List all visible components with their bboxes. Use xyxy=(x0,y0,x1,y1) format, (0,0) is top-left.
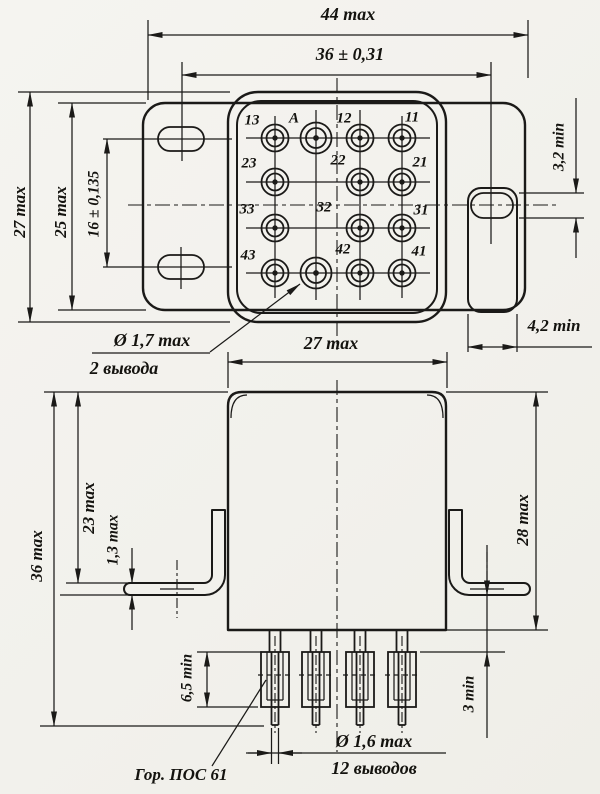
dim-body-width-label: 27 max xyxy=(303,333,359,353)
pin-diameter-side-value: Ø 1,6 max xyxy=(335,731,413,751)
dim-clearance-min-label: 3 min xyxy=(461,676,478,714)
pin-diameter-value: Ø 1,7 max xyxy=(113,330,191,350)
pin-label-33: 33 xyxy=(239,201,256,217)
dim-body-width: 27 max xyxy=(228,333,447,388)
dim-mount-span: 36 ± 0,31 xyxy=(182,44,491,75)
pin-diameter-callout-side: Ø 1,6 max 12 выводов xyxy=(246,728,446,778)
mounting-bracket-left xyxy=(124,510,225,618)
pin-count-side-value: 12 выводов xyxy=(331,758,417,778)
pin-unit xyxy=(385,630,419,733)
dim-slot-width: 3,2 min xyxy=(519,98,584,258)
pin-label-13: 13 xyxy=(245,112,261,128)
pin-large-A xyxy=(301,123,332,154)
dim-tab-width: 4,2 min xyxy=(468,314,592,352)
dim-tab-width-label: 4,2 min xyxy=(527,316,581,335)
pin-label-31: 31 xyxy=(413,202,429,218)
dim-overall-height-side: 36 max xyxy=(27,392,54,726)
dim-body-height-label: 28 max xyxy=(513,494,532,547)
top-view: 13 A 12 11 23 22 21 33 32 31 43 42 41 44… xyxy=(10,4,592,378)
dim-slot-pitch: 16 ± 0,135 xyxy=(86,139,107,267)
pin-label-11: 11 xyxy=(405,109,419,125)
dim-overall-width-label: 44 max xyxy=(320,4,376,24)
dim-flange-height-label: 25 max xyxy=(51,186,70,239)
dim-overall-height: 27 max xyxy=(10,92,230,322)
pin-label-22: 22 xyxy=(330,152,347,168)
dim-slot-pitch-label: 16 ± 0,135 xyxy=(86,170,103,237)
pin-label-12: 12 xyxy=(337,110,353,126)
side-view: 27 max 36 max 23 max 1,3 max 28 max xyxy=(27,333,548,784)
pin-label-43: 43 xyxy=(240,247,257,263)
pin-label-21: 21 xyxy=(412,154,428,170)
dim-overall-height-side-label: 36 max xyxy=(27,530,46,583)
mounting-slot-right xyxy=(471,62,513,244)
pin-count-value: 2 вывода xyxy=(89,358,159,378)
solder-pins-side-view xyxy=(258,630,419,733)
pin-unit xyxy=(343,630,377,733)
dim-foot-thickness-label: 1,3 max xyxy=(105,514,122,565)
dim-sleeve-min: 6,5 min xyxy=(179,652,262,707)
pin-diameter-callout-top: Ø 1,7 max 2 вывода xyxy=(89,284,300,378)
corner-arc-right xyxy=(427,395,443,418)
dim-foot-thickness: 1,3 max xyxy=(60,514,140,630)
dim-bracket-drop: 23 max xyxy=(66,392,134,583)
pin-unit xyxy=(299,630,333,733)
solder-note-callout: Гор. ПОС 61 xyxy=(134,680,266,784)
relay-dimension-drawing-sheet: 13 A 12 11 23 22 21 33 32 31 43 42 41 44… xyxy=(0,0,600,794)
pin-label-42: 42 xyxy=(335,241,352,257)
pin-label-A: A xyxy=(288,110,299,126)
dim-mount-span-label: 36 ± 0,31 xyxy=(315,44,384,64)
dim-overall-height-label: 27 max xyxy=(10,186,29,239)
pin-label-23: 23 xyxy=(241,155,258,171)
corner-arc-left xyxy=(231,395,247,418)
dim-sleeve-min-label: 6,5 min xyxy=(179,654,196,702)
mounting-tab-outline xyxy=(468,188,517,312)
pin-large-lower xyxy=(301,258,332,289)
pin-label-32: 32 xyxy=(316,199,333,215)
technical-drawing: 13 A 12 11 23 22 21 33 32 31 43 42 41 44… xyxy=(0,0,600,794)
dim-bracket-drop-label: 23 max xyxy=(79,482,98,535)
pin-unit xyxy=(258,630,292,733)
dim-slot-width-label: 3,2 min xyxy=(551,123,568,172)
mounting-slot-left-upper xyxy=(103,62,232,161)
mounting-slot-left-lower xyxy=(103,247,232,289)
pin-label-41: 41 xyxy=(411,243,427,259)
solder-note-label: Гор. ПОС 61 xyxy=(134,765,228,784)
